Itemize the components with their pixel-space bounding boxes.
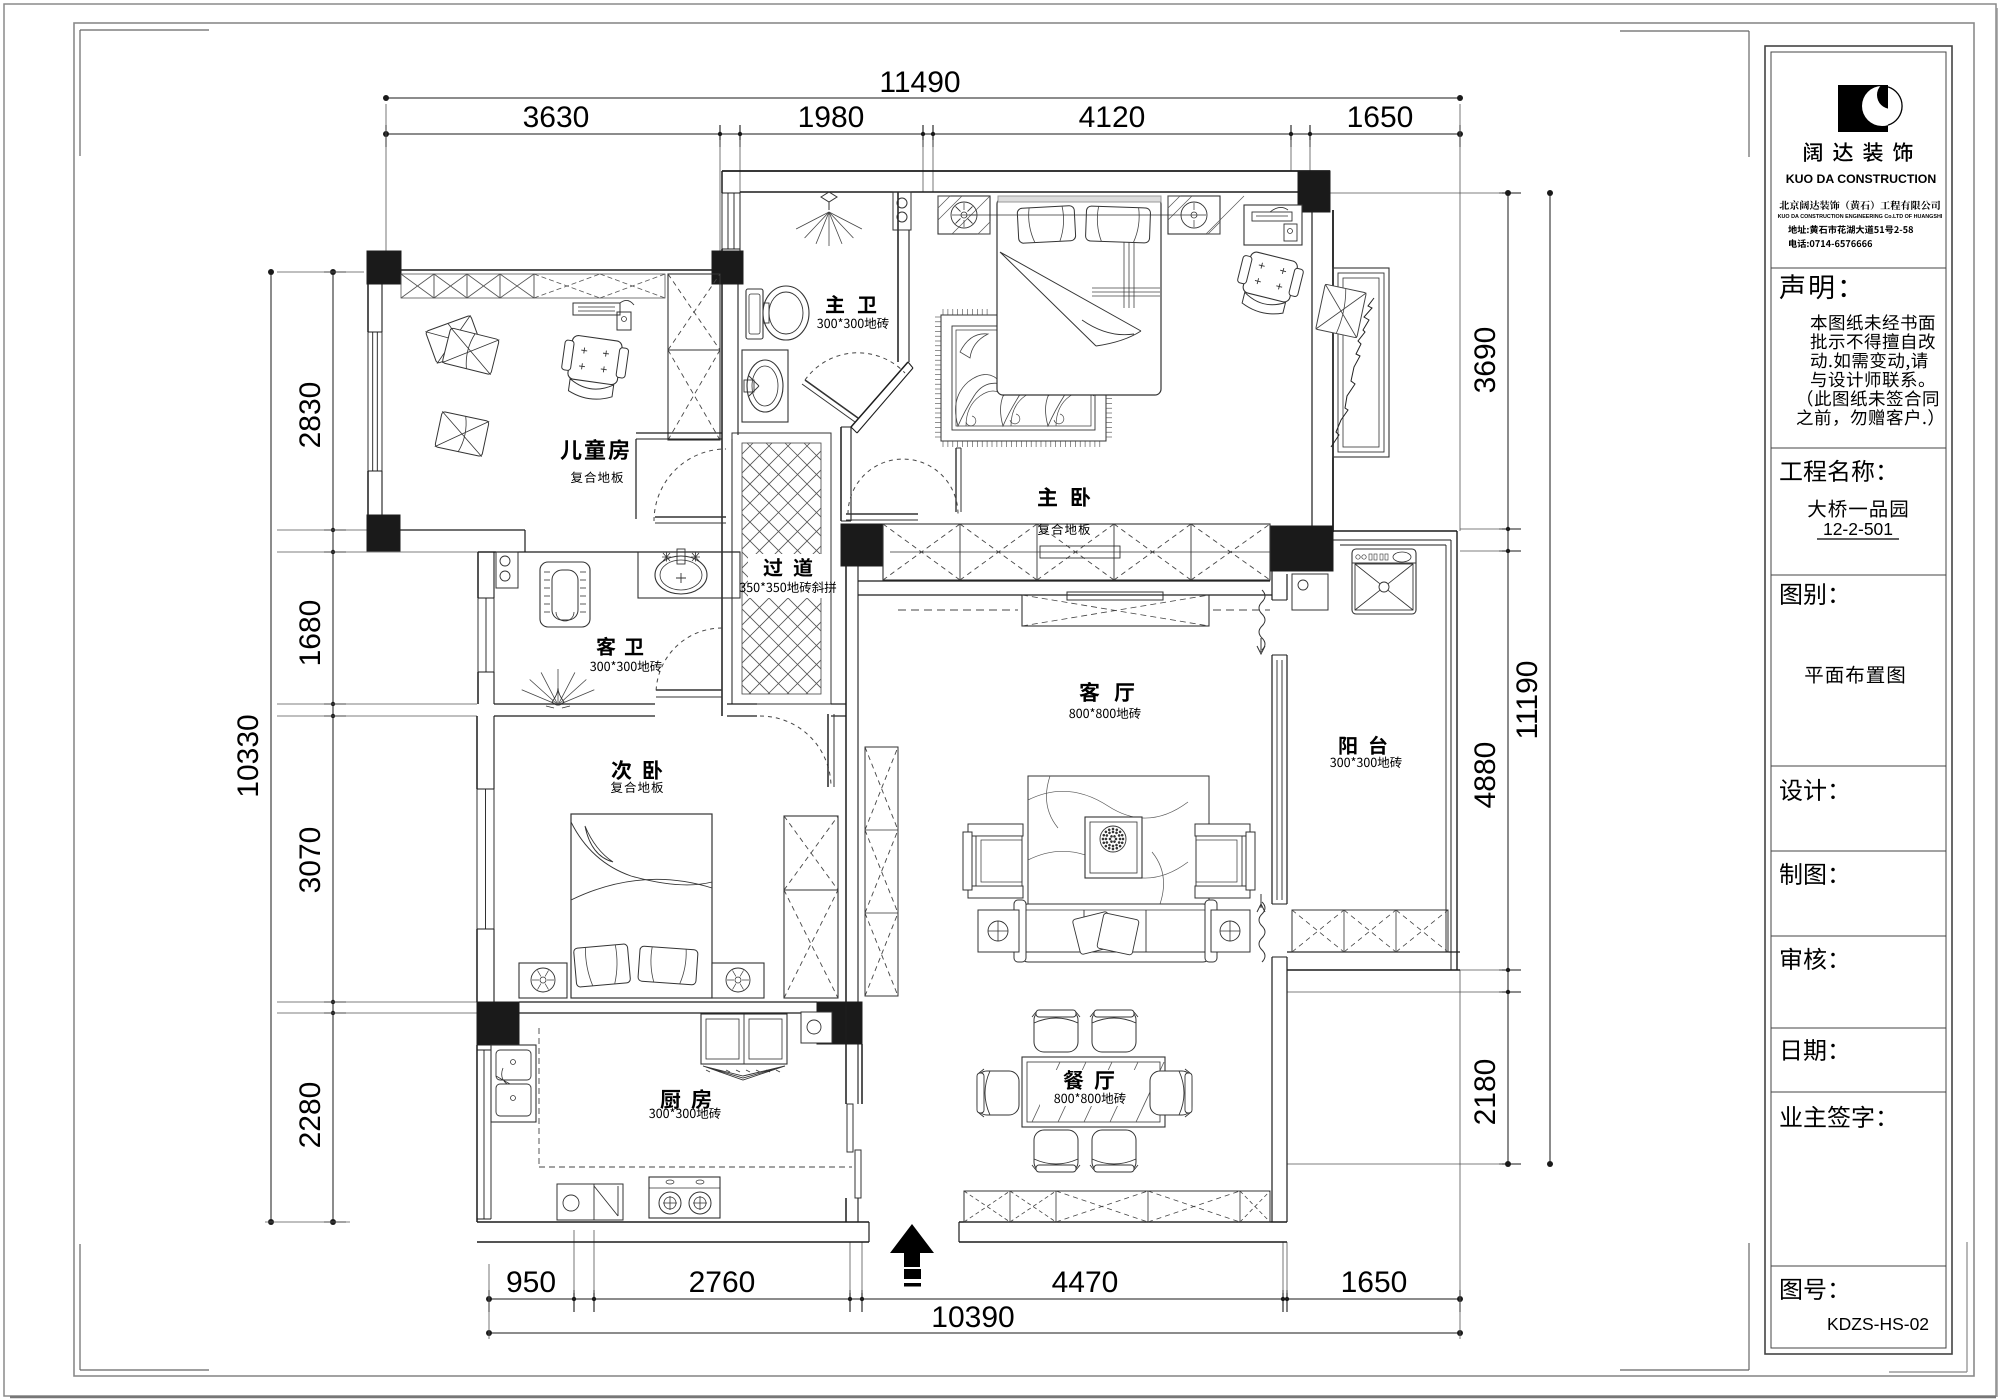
svg-text:2180: 2180	[1469, 1059, 1502, 1126]
svg-text:KUO DA CONSTRUCTION: KUO DA CONSTRUCTION	[1786, 172, 1937, 186]
svg-text:2760: 2760	[689, 1266, 756, 1299]
svg-text:4120: 4120	[1079, 101, 1146, 134]
svg-text:4880: 4880	[1469, 742, 1502, 809]
svg-text:10330: 10330	[232, 714, 265, 797]
svg-text:3630: 3630	[523, 101, 590, 134]
svg-text:KDZS-HS-02: KDZS-HS-02	[1827, 1314, 1929, 1334]
svg-text:1650: 1650	[1341, 1266, 1408, 1299]
svg-text:2280: 2280	[294, 1082, 327, 1149]
svg-text:950: 950	[506, 1266, 556, 1299]
svg-text:10390: 10390	[931, 1301, 1014, 1334]
svg-text:KUO DA CONSTRUCTION ENGINEERIN: KUO DA CONSTRUCTION ENGINEERING Co.LTD O…	[1778, 214, 1943, 220]
svg-text:3070: 3070	[294, 827, 327, 894]
svg-text:1680: 1680	[294, 600, 327, 667]
svg-text:2830: 2830	[294, 382, 327, 449]
svg-text:4470: 4470	[1052, 1266, 1119, 1299]
svg-text:12-2-501: 12-2-501	[1823, 519, 1893, 539]
svg-text:1650: 1650	[1347, 101, 1414, 134]
svg-text:1980: 1980	[798, 101, 865, 134]
svg-text:3690: 3690	[1469, 327, 1502, 394]
svg-text:11190: 11190	[1511, 661, 1544, 740]
svg-text:11490: 11490	[879, 66, 960, 99]
